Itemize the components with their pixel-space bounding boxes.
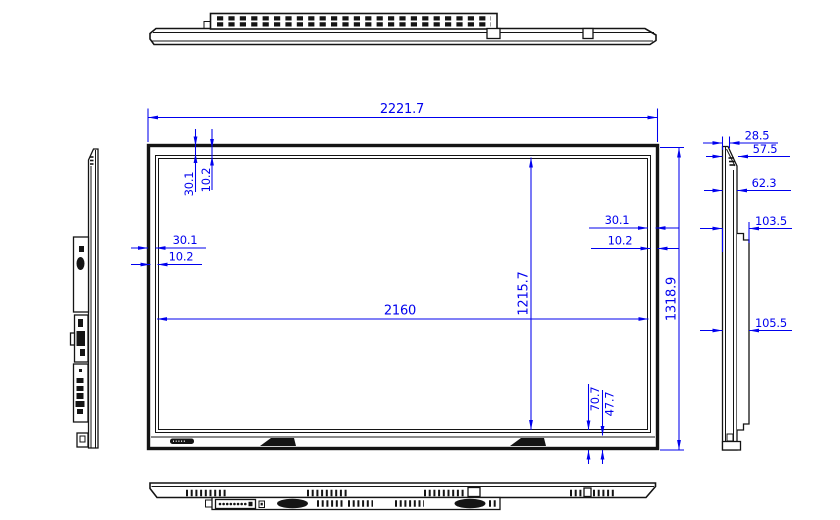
dim-label-active-height: 1215.7 bbox=[517, 271, 532, 315]
dim-label-overall-width: 2221.7 bbox=[380, 102, 424, 117]
left-side-view bbox=[71, 149, 99, 448]
dim-label-top-glass: 10.2 bbox=[199, 168, 213, 193]
dim-label-left-bezel: 30.1 bbox=[173, 233, 198, 247]
right-side-view bbox=[723, 147, 750, 451]
dim-label-left-glass: 10.2 bbox=[169, 250, 194, 264]
right-bottom-foot bbox=[723, 442, 741, 451]
dim-label-depth-body: 62.3 bbox=[752, 176, 777, 190]
drawing-canvas: 2221.7 1318.9 2160 1215.7 bbox=[0, 0, 840, 520]
dim-label-depth-back-upper: 103.5 bbox=[755, 214, 787, 228]
dim-label-bottom-glass: 47.7 bbox=[603, 392, 617, 417]
dim-label-right-bezel: 30.1 bbox=[605, 213, 630, 227]
right-view-body bbox=[723, 147, 738, 451]
left-bottom-foot bbox=[77, 433, 88, 447]
dim-label-top-bezel: 30.1 bbox=[182, 172, 196, 197]
dim-label-overall-height: 1318.9 bbox=[665, 277, 680, 321]
top-clip bbox=[487, 29, 500, 39]
dim-label-right-glass: 10.2 bbox=[608, 234, 633, 248]
technical-drawing-page: 2221.7 1318.9 2160 1215.7 bbox=[0, 0, 840, 520]
left-sensor-oval bbox=[77, 257, 85, 270]
left-view-body bbox=[89, 149, 99, 448]
top-clip bbox=[583, 29, 593, 39]
dim-depth-body: 62.3 bbox=[704, 176, 791, 192]
top-view bbox=[150, 14, 656, 45]
front-outer-frame bbox=[149, 146, 658, 449]
dim-label-bottom-bezel: 70.7 bbox=[588, 387, 602, 412]
right-rear-box bbox=[737, 234, 749, 431]
top-vent-grille-frame bbox=[211, 14, 498, 30]
bottom-speaker-left bbox=[277, 499, 308, 509]
dim-label-depth-front: 28.5 bbox=[745, 129, 770, 143]
bottom-view bbox=[150, 483, 656, 510]
top-view-slab bbox=[150, 29, 656, 45]
bottom-speaker-right bbox=[455, 499, 486, 509]
dim-overall-height: 1318.9 bbox=[660, 148, 684, 451]
dim-depth-top: 57.5 bbox=[706, 142, 790, 158]
dim-label-depth-back-lower: 105.5 bbox=[755, 316, 787, 330]
front-view bbox=[149, 146, 658, 449]
dim-label-active-width: 2160 bbox=[384, 304, 416, 319]
dim-overall-width: 2221.7 bbox=[148, 102, 658, 142]
front-sensor-bar bbox=[170, 439, 194, 445]
dim-label-depth-top: 57.5 bbox=[753, 142, 778, 156]
